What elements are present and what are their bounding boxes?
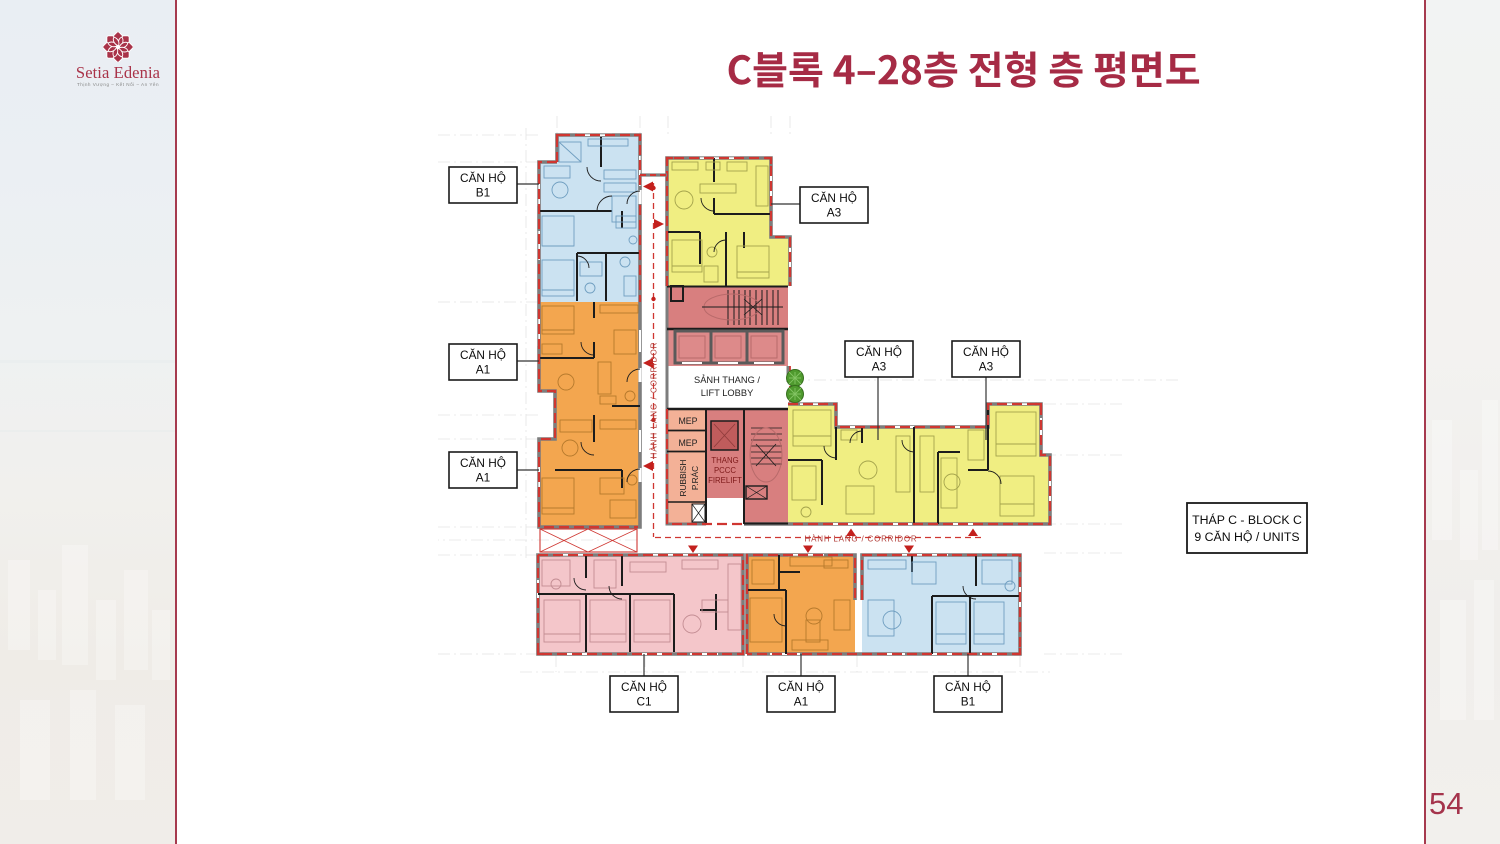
svg-text:MEP: MEP	[678, 416, 697, 426]
svg-text:B1: B1	[476, 186, 490, 200]
svg-text:A3: A3	[979, 360, 994, 374]
svg-text:CĂN HỘ: CĂN HỘ	[856, 345, 902, 359]
svg-text:CĂN HỘ: CĂN HỘ	[460, 348, 506, 362]
svg-text:P.RÁC: P.RÁC	[690, 466, 700, 490]
svg-text:THÁP C - BLOCK C: THÁP C - BLOCK C	[1192, 512, 1302, 527]
svg-text:MEP: MEP	[678, 438, 697, 448]
svg-text:A1: A1	[476, 363, 490, 377]
svg-text:CĂN HỘ: CĂN HỘ	[621, 680, 667, 694]
svg-text:CĂN HỘ: CĂN HỘ	[460, 456, 506, 470]
svg-text:9 CĂN HỘ / UNITS: 9 CĂN HỘ / UNITS	[1194, 529, 1299, 544]
svg-text:PCCC: PCCC	[714, 466, 736, 475]
svg-text:CĂN HỘ: CĂN HỘ	[945, 680, 991, 694]
svg-text:A1: A1	[794, 695, 808, 709]
svg-text:C1: C1	[636, 695, 651, 709]
svg-text:FIRELIFT: FIRELIFT	[708, 476, 742, 485]
svg-text:CĂN HỘ: CĂN HỘ	[811, 191, 857, 205]
svg-text:HÀNH LANG / CORRIDOR: HÀNH LANG / CORRIDOR	[650, 342, 659, 459]
svg-text:A3: A3	[872, 360, 887, 374]
svg-text:CĂN HỘ: CĂN HỘ	[778, 680, 824, 694]
svg-text:B1: B1	[961, 695, 975, 709]
svg-text:HÀNH LANG / CORRIDOR: HÀNH LANG / CORRIDOR	[805, 535, 918, 544]
svg-text:CĂN HỘ: CĂN HỘ	[460, 171, 506, 185]
svg-text:CĂN HỘ: CĂN HỘ	[963, 345, 1009, 359]
svg-text:RUBBISH: RUBBISH	[678, 460, 688, 497]
svg-text:LIFT LOBBY: LIFT LOBBY	[701, 388, 754, 398]
svg-text:A1: A1	[476, 471, 490, 485]
svg-text:THANG: THANG	[711, 456, 738, 465]
svg-text:A3: A3	[827, 206, 842, 220]
svg-text:SẢNH THANG /: SẢNH THANG /	[694, 374, 760, 385]
